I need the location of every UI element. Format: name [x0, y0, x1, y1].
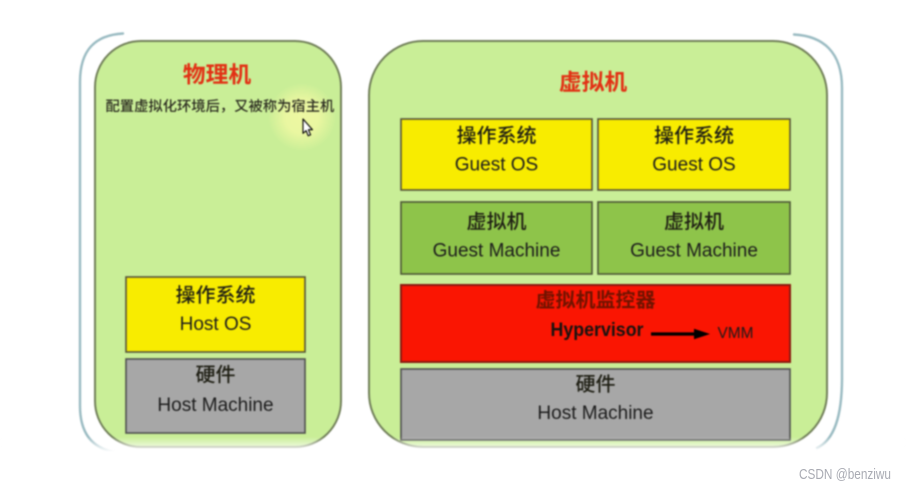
- svg-text:CSDN @benziwu: CSDN @benziwu: [799, 466, 891, 483]
